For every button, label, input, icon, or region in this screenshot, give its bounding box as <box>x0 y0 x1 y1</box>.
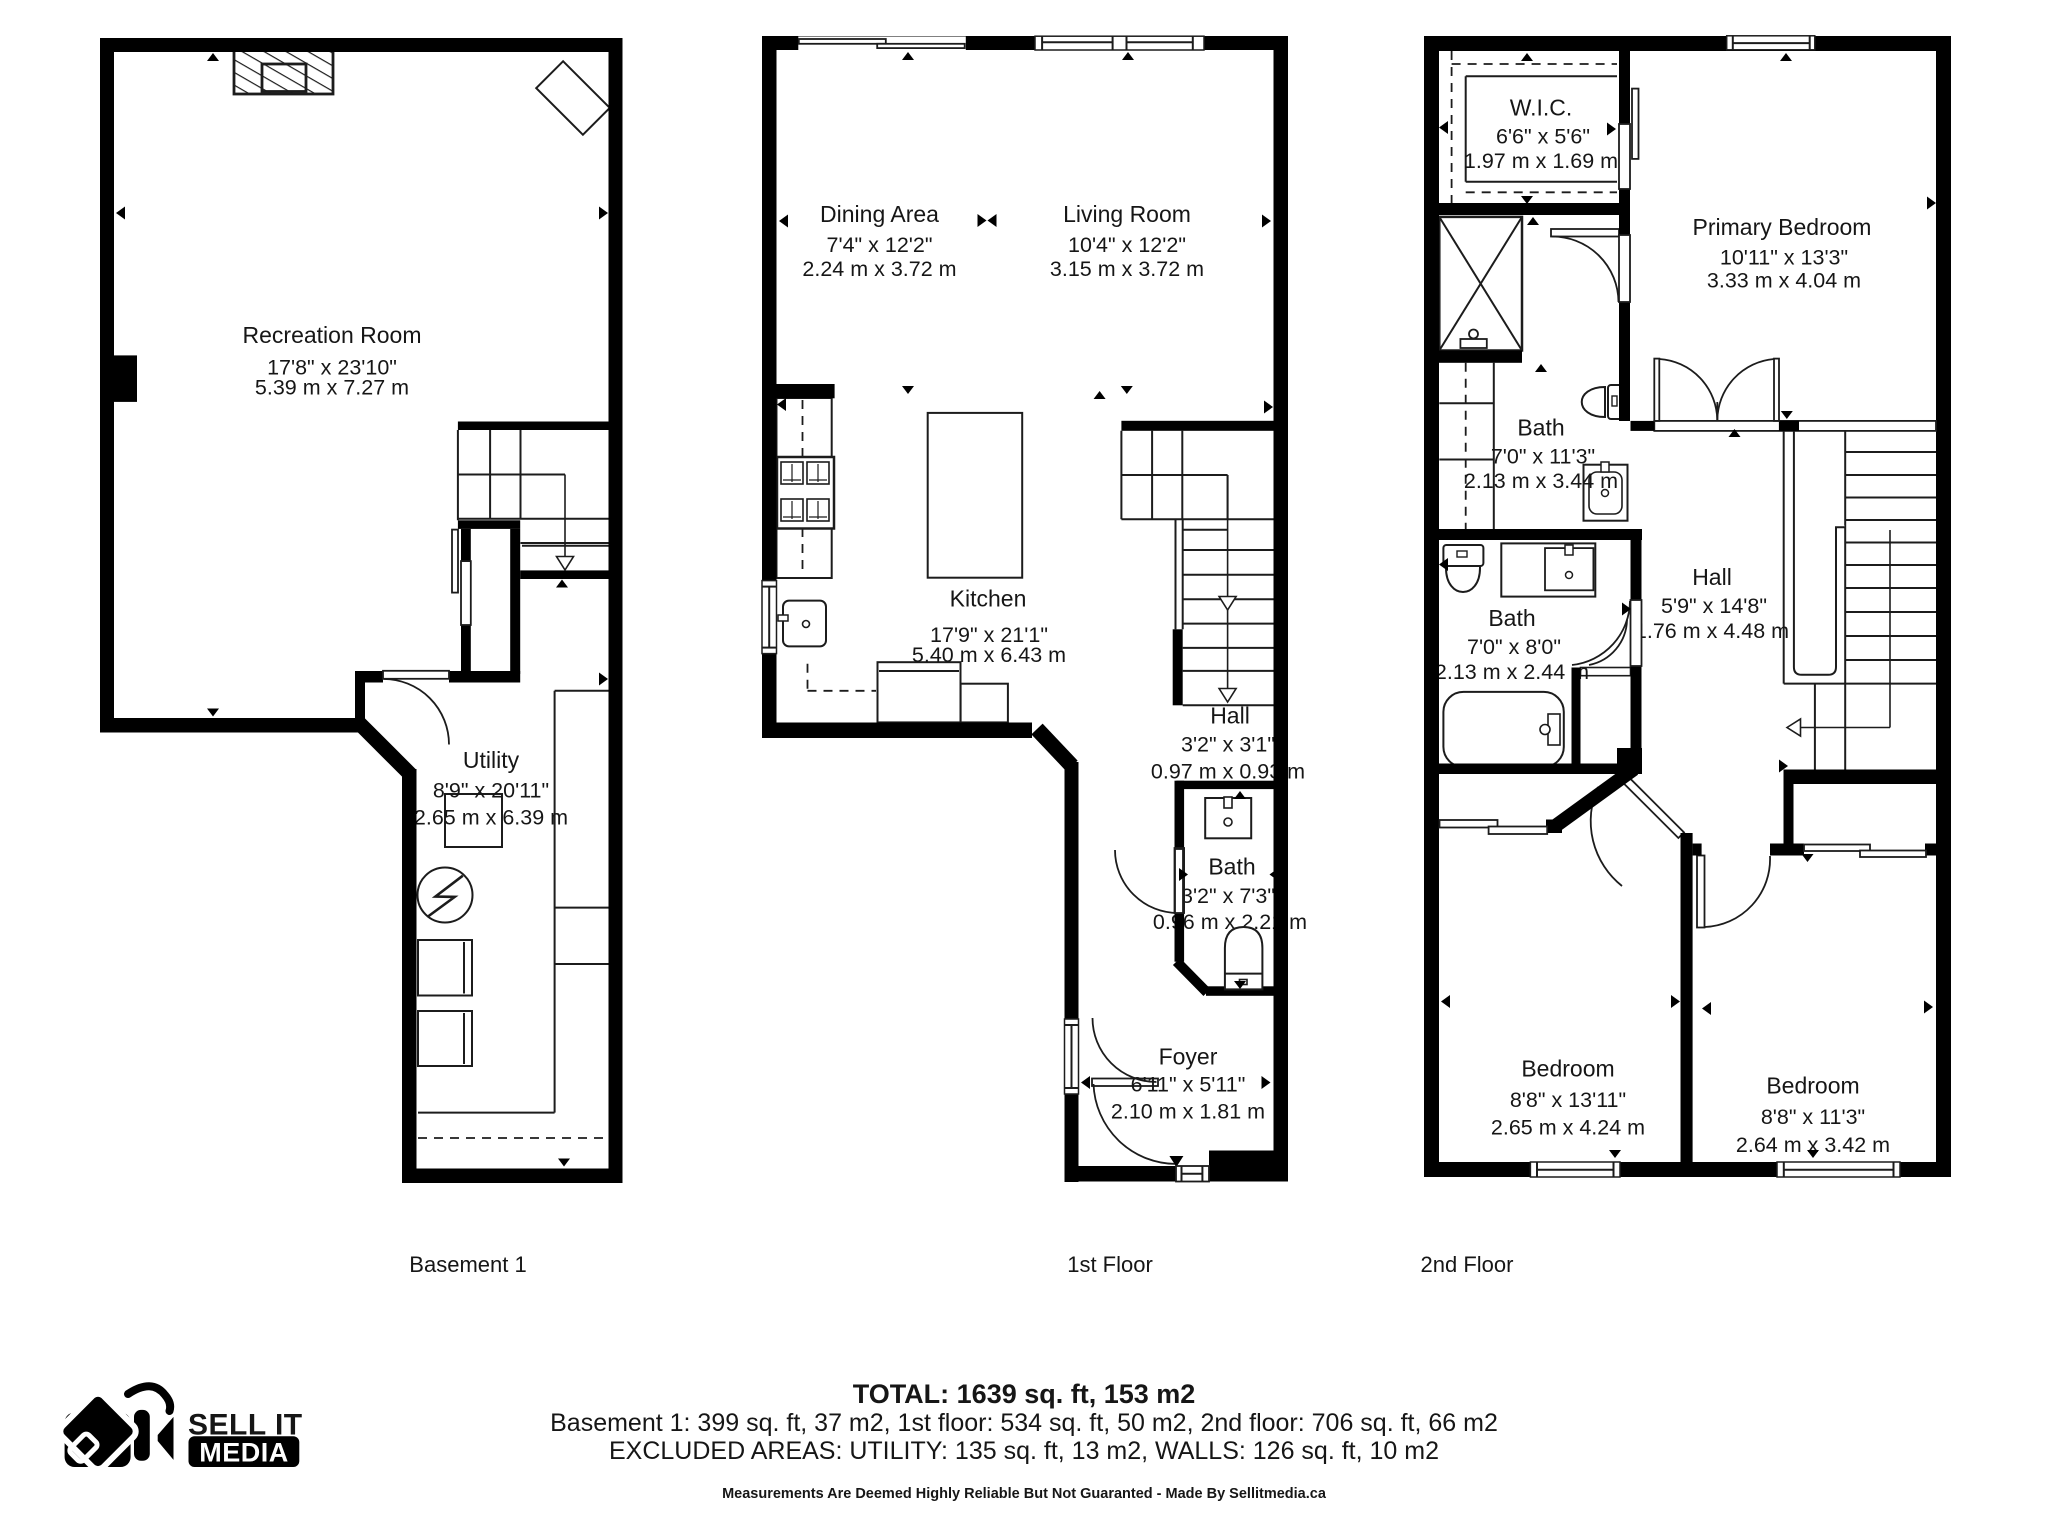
svg-text:8'8" x 13'11": 8'8" x 13'11" <box>1510 1088 1626 1112</box>
svg-text:3'2" x 3'1": 3'2" x 3'1" <box>1181 733 1275 757</box>
svg-text:Measurements Are Deemed Highly: Measurements Are Deemed Highly Reliable … <box>722 1486 1327 1502</box>
svg-text:2.13 m x 3.44 m: 2.13 m x 3.44 m <box>1464 469 1618 493</box>
svg-text:Basement 1: 399 sq. ft, 37 m2,: Basement 1: 399 sq. ft, 37 m2, 1st floor… <box>550 1409 1498 1437</box>
svg-text:1st Floor: 1st Floor <box>1067 1252 1153 1277</box>
svg-text:8'9" x 20'11": 8'9" x 20'11" <box>433 779 549 803</box>
svg-text:Bath: Bath <box>1488 605 1535 631</box>
svg-text:3.33 m x 4.04 m: 3.33 m x 4.04 m <box>1707 269 1861 293</box>
svg-text:10'4" x 12'2": 10'4" x 12'2" <box>1068 233 1186 257</box>
svg-text:Bedroom: Bedroom <box>1766 1073 1859 1099</box>
svg-text:5'9" x 14'8": 5'9" x 14'8" <box>1661 594 1767 618</box>
svg-text:Living Room: Living Room <box>1063 201 1191 227</box>
svg-text:2.65 m x 6.39 m: 2.65 m x 6.39 m <box>414 806 568 830</box>
svg-text:Basement 1: Basement 1 <box>409 1252 526 1277</box>
svg-text:MEDIA: MEDIA <box>199 1438 289 1468</box>
svg-text:Utility: Utility <box>463 747 520 773</box>
svg-text:2.24 m x 3.72 m: 2.24 m x 3.72 m <box>802 257 956 281</box>
svg-text:TOTAL: 1639 sq. ft, 153 m2: TOTAL: 1639 sq. ft, 153 m2 <box>853 1379 1196 1409</box>
svg-text:3'2" x 7'3": 3'2" x 7'3" <box>1181 884 1275 908</box>
svg-text:8'8" x 11'3": 8'8" x 11'3" <box>1761 1105 1865 1129</box>
svg-text:1.76 m x 4.48 m: 1.76 m x 4.48 m <box>1635 619 1789 643</box>
svg-text:1.97 m x 1.69 m: 1.97 m x 1.69 m <box>1464 149 1618 173</box>
svg-text:2.10 m x 1.81 m: 2.10 m x 1.81 m <box>1111 1100 1265 1124</box>
svg-text:Kitchen: Kitchen <box>950 586 1027 612</box>
svg-text:7'0" x 11'3": 7'0" x 11'3" <box>1491 445 1595 469</box>
svg-text:3.15 m x 3.72 m: 3.15 m x 3.72 m <box>1050 257 1204 281</box>
svg-text:10'11" x 13'3": 10'11" x 13'3" <box>1720 246 1848 270</box>
svg-text:2.13 m x 2.44 m: 2.13 m x 2.44 m <box>1435 660 1589 684</box>
svg-text:Bedroom: Bedroom <box>1521 1056 1614 1082</box>
svg-text:2nd Floor: 2nd Floor <box>1421 1252 1514 1277</box>
svg-text:Recreation Room: Recreation Room <box>243 322 422 348</box>
svg-text:5.39 m x 7.27 m: 5.39 m x 7.27 m <box>255 376 409 400</box>
svg-text:Dining Area: Dining Area <box>820 201 939 227</box>
svg-text:W.I.C.: W.I.C. <box>1510 95 1573 121</box>
svg-text:Foyer: Foyer <box>1159 1044 1218 1070</box>
svg-text:7'4" x 12'2": 7'4" x 12'2" <box>827 233 933 257</box>
svg-text:6'11" x 5'11": 6'11" x 5'11" <box>1131 1073 1246 1097</box>
svg-text:Hall: Hall <box>1692 564 1732 590</box>
svg-text:Primary Bedroom: Primary Bedroom <box>1693 214 1872 240</box>
svg-text:2.65 m x 4.24 m: 2.65 m x 4.24 m <box>1491 1116 1645 1140</box>
svg-text:5.40 m x 6.43 m: 5.40 m x 6.43 m <box>912 643 1066 667</box>
svg-text:Bath: Bath <box>1517 415 1564 441</box>
svg-text:EXCLUDED AREAS: UTILITY: 135 s: EXCLUDED AREAS: UTILITY: 135 sq. ft, 13 … <box>609 1437 1439 1465</box>
svg-text:6'6" x 5'6": 6'6" x 5'6" <box>1496 125 1590 149</box>
svg-text:7'0" x 8'0": 7'0" x 8'0" <box>1467 635 1561 659</box>
svg-text:Bath: Bath <box>1208 854 1255 880</box>
svg-text:Hall: Hall <box>1210 703 1250 729</box>
